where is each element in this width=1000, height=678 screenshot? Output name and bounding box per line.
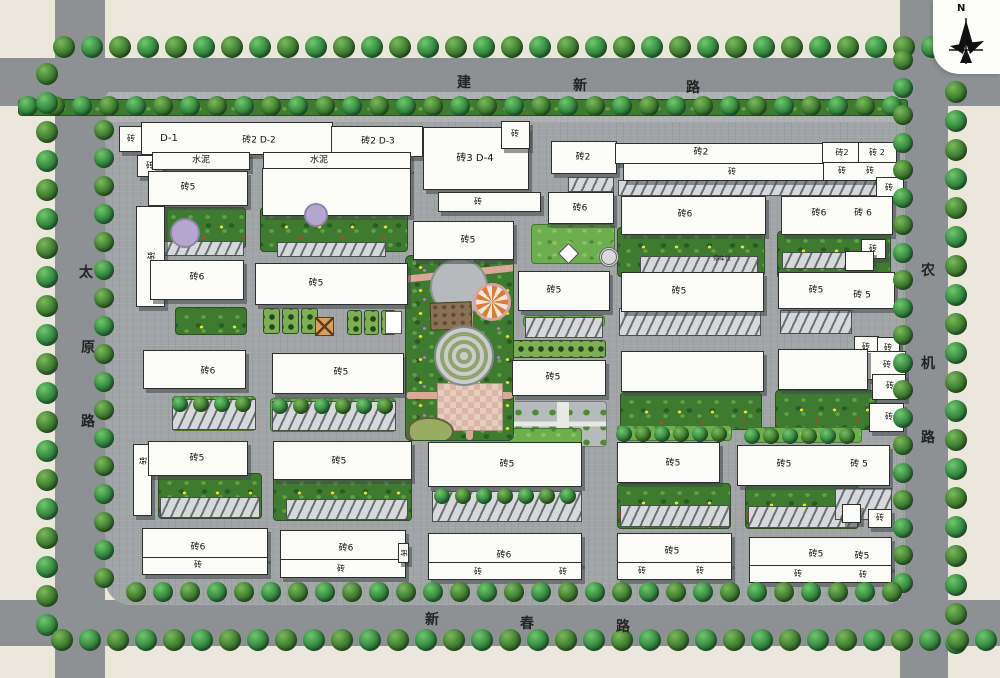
street-tree <box>137 36 159 58</box>
street-tree <box>473 36 495 58</box>
street-tree <box>945 342 967 364</box>
street-tree <box>361 36 383 58</box>
street-tree <box>945 226 967 248</box>
street-tree <box>945 110 967 132</box>
road-taiyuan <box>55 0 105 678</box>
street-tree <box>945 284 967 306</box>
street-tree <box>641 36 663 58</box>
street-tree <box>221 36 243 58</box>
street-tree <box>529 36 551 58</box>
street-tree <box>865 36 887 58</box>
street-tree <box>753 36 775 58</box>
street-tree <box>557 36 579 58</box>
road-xinchun <box>0 600 1000 646</box>
street-tree <box>837 36 859 58</box>
street-tree <box>945 400 967 422</box>
road-nongji <box>900 0 948 678</box>
street-tree <box>945 168 967 190</box>
street-tree <box>697 36 719 58</box>
street-tree <box>193 36 215 58</box>
street-tree <box>945 545 967 567</box>
street-tree <box>945 139 967 161</box>
street-tree <box>333 36 355 58</box>
street-tree <box>165 36 187 58</box>
street-tree <box>389 36 411 58</box>
street-tree <box>945 487 967 509</box>
street-tree <box>945 458 967 480</box>
street-tree <box>613 36 635 58</box>
street-tree <box>945 371 967 393</box>
street-tree <box>277 36 299 58</box>
street-tree <box>945 255 967 277</box>
street-tree <box>945 516 967 538</box>
park-circular-terrace <box>434 326 494 386</box>
park-pond <box>408 417 454 441</box>
street-tree <box>945 574 967 596</box>
master-plan: 砖D-1砖2 D-2砖2 D-3砖3 D-4砖砖2砖2砖2砖 2砖砖砖砖砖水泥砖… <box>0 0 1000 678</box>
street-tree <box>725 36 747 58</box>
street-tree <box>781 36 803 58</box>
street-tree <box>249 36 271 58</box>
north-arrow-icon <box>941 8 991 70</box>
street-tree <box>305 36 327 58</box>
street-tree <box>417 36 439 58</box>
street-tree <box>945 429 967 451</box>
street-tree <box>585 36 607 58</box>
street-tree <box>809 36 831 58</box>
central-park <box>405 255 514 441</box>
street-tree <box>669 36 691 58</box>
street-tree <box>109 36 131 58</box>
street-tree <box>945 197 967 219</box>
park-sun-medallion <box>473 283 511 321</box>
street-tree <box>501 36 523 58</box>
street-tree <box>945 313 967 335</box>
street-tree <box>445 36 467 58</box>
